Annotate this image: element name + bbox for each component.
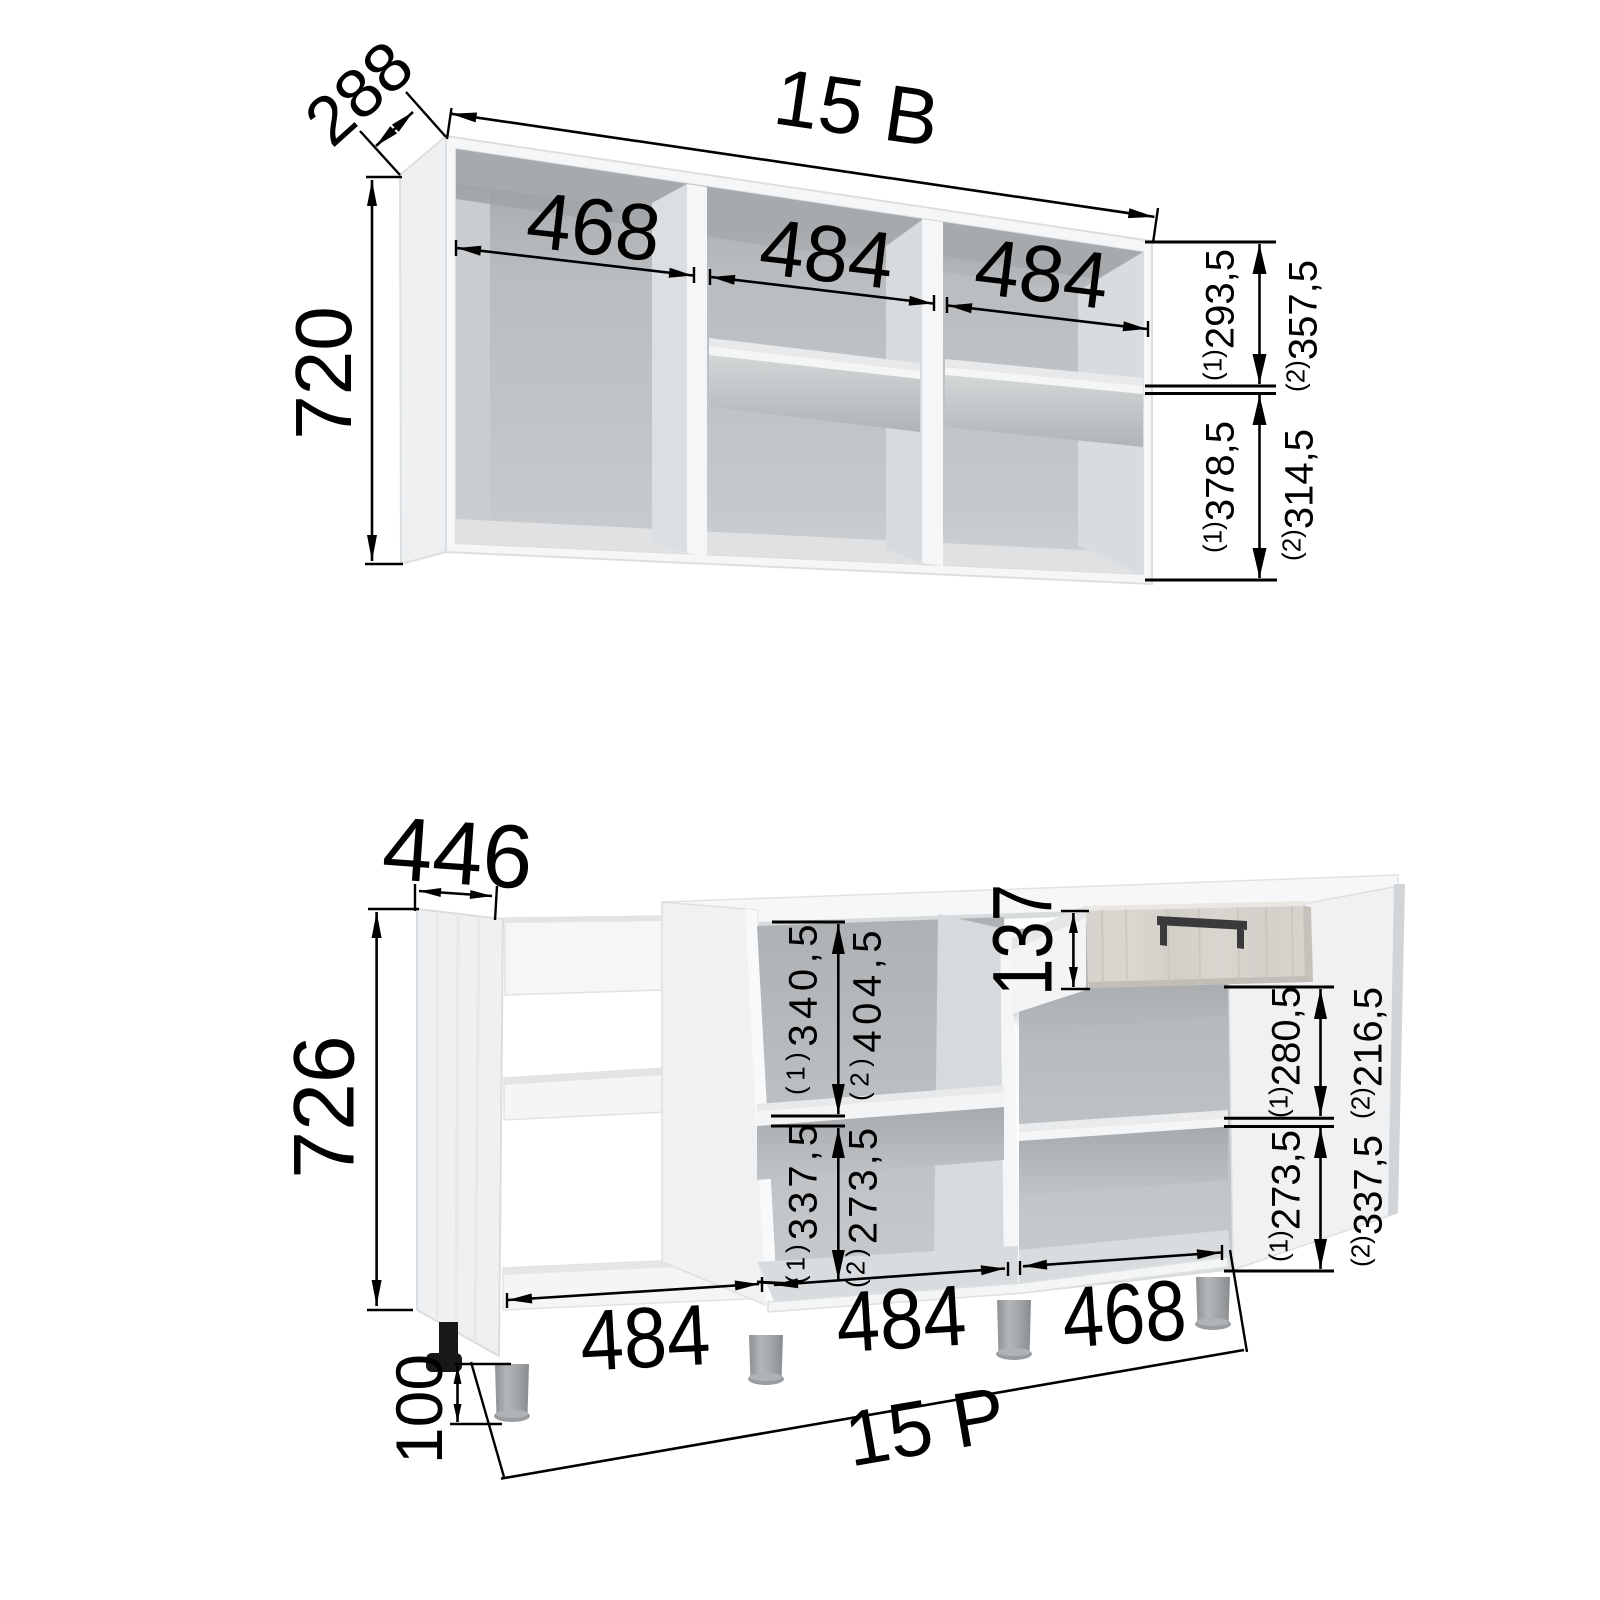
svg-text:484: 484 [578, 1287, 713, 1390]
svg-text:484: 484 [970, 221, 1113, 325]
svg-text:468: 468 [522, 175, 665, 279]
svg-text:720: 720 [279, 306, 368, 439]
svg-text:468: 468 [1059, 1262, 1189, 1366]
svg-text:484: 484 [833, 1267, 969, 1371]
svg-text:446: 446 [379, 799, 536, 909]
svg-text:726: 726 [276, 1035, 372, 1179]
svg-text:484: 484 [755, 202, 898, 306]
svg-text:137: 137 [976, 884, 1070, 996]
svg-text:100: 100 [382, 1354, 456, 1464]
